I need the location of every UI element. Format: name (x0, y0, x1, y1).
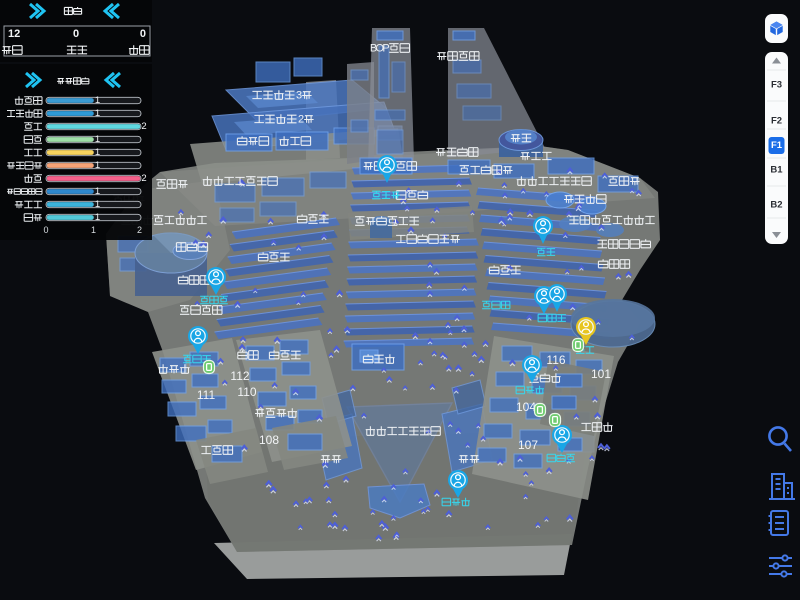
svg-text:12: 12 (8, 28, 20, 40)
svg-text:104: 104 (516, 400, 536, 414)
svg-text:1: 1 (95, 186, 100, 197)
svg-text:101: 101 (591, 367, 611, 381)
svg-text:1: 1 (95, 199, 100, 210)
svg-text:3: 3 (296, 90, 302, 102)
svg-text:107: 107 (518, 438, 538, 452)
svg-text:2: 2 (137, 225, 142, 235)
svg-text:110: 110 (237, 385, 256, 399)
svg-text:108: 108 (259, 433, 279, 447)
svg-text:F2: F2 (771, 116, 782, 127)
svg-text:P: P (382, 43, 389, 55)
svg-text:F1: F1 (771, 140, 783, 151)
svg-text:F3: F3 (771, 80, 782, 91)
svg-text:2: 2 (141, 121, 146, 132)
svg-text:B1: B1 (770, 165, 783, 176)
svg-text:1: 1 (91, 225, 96, 235)
svg-text:1: 1 (95, 95, 100, 106)
svg-text:2: 2 (298, 114, 304, 126)
svg-text:1: 1 (95, 160, 100, 171)
svg-text:0: 0 (43, 225, 48, 235)
svg-text:1: 1 (95, 147, 100, 158)
svg-text:116: 116 (546, 353, 565, 367)
svg-text:1: 1 (95, 212, 100, 223)
svg-text:0: 0 (140, 28, 146, 40)
svg-text:111: 111 (197, 388, 216, 402)
svg-text:2: 2 (141, 173, 146, 184)
svg-text:1: 1 (95, 108, 100, 119)
svg-text:B2: B2 (770, 200, 782, 211)
svg-text:1: 1 (95, 134, 100, 145)
svg-text:112: 112 (230, 369, 249, 383)
svg-text:0: 0 (73, 28, 79, 40)
